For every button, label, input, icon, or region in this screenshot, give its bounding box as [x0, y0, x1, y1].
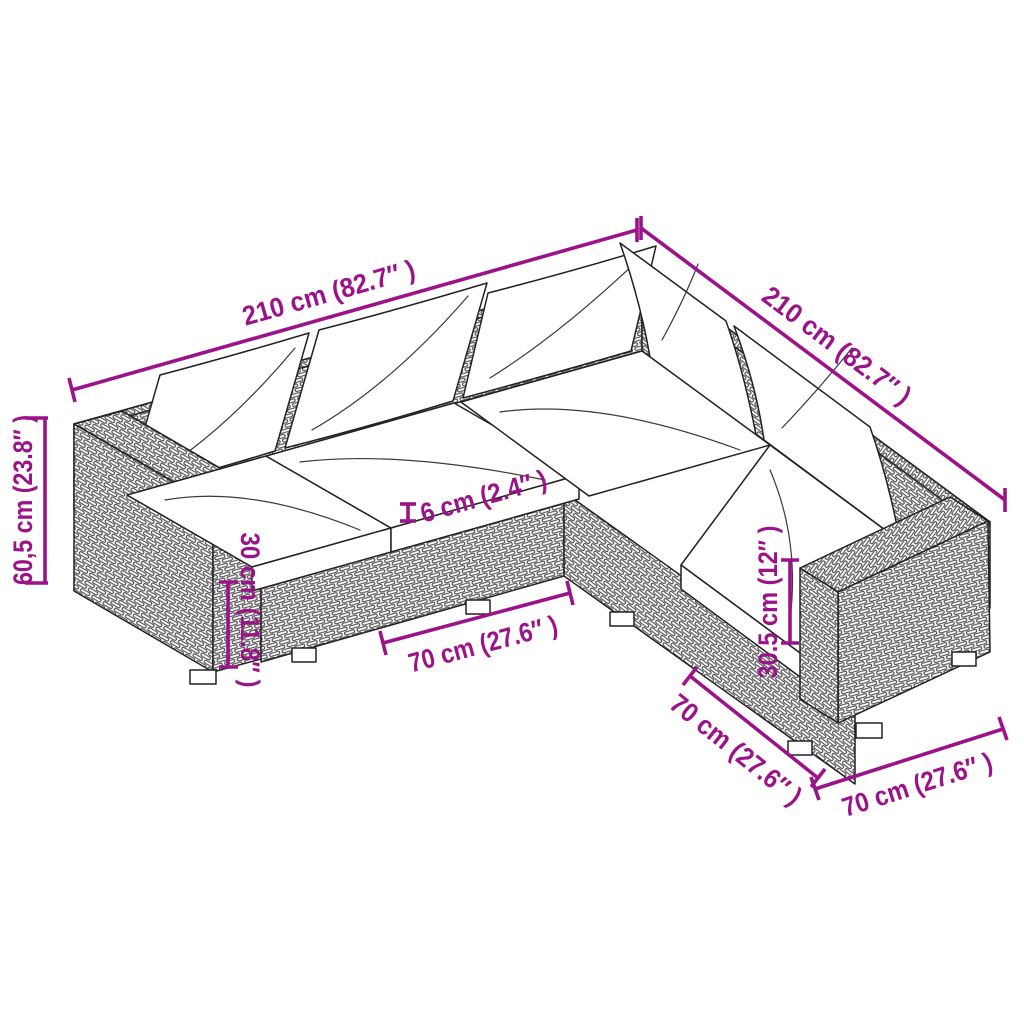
foot — [856, 723, 882, 738]
foot — [466, 600, 490, 614]
foot — [610, 612, 634, 626]
foot — [190, 670, 216, 684]
dimension-label-total-height: 60,5 cm (23.8″ ) — [8, 415, 38, 585]
dimension-label-right-seat-height: 30.5 cm (12″ ) — [753, 526, 783, 679]
foot — [292, 648, 316, 662]
foot — [788, 741, 812, 755]
foot — [952, 652, 976, 666]
sofa-dimension-diagram: 210 cm (82.7″ ) 210 cm (82.7″ ) 60,5 cm … — [0, 0, 1024, 1024]
dimension-label-left-seat-height: 30 cm (11.8″ ) — [235, 533, 265, 688]
